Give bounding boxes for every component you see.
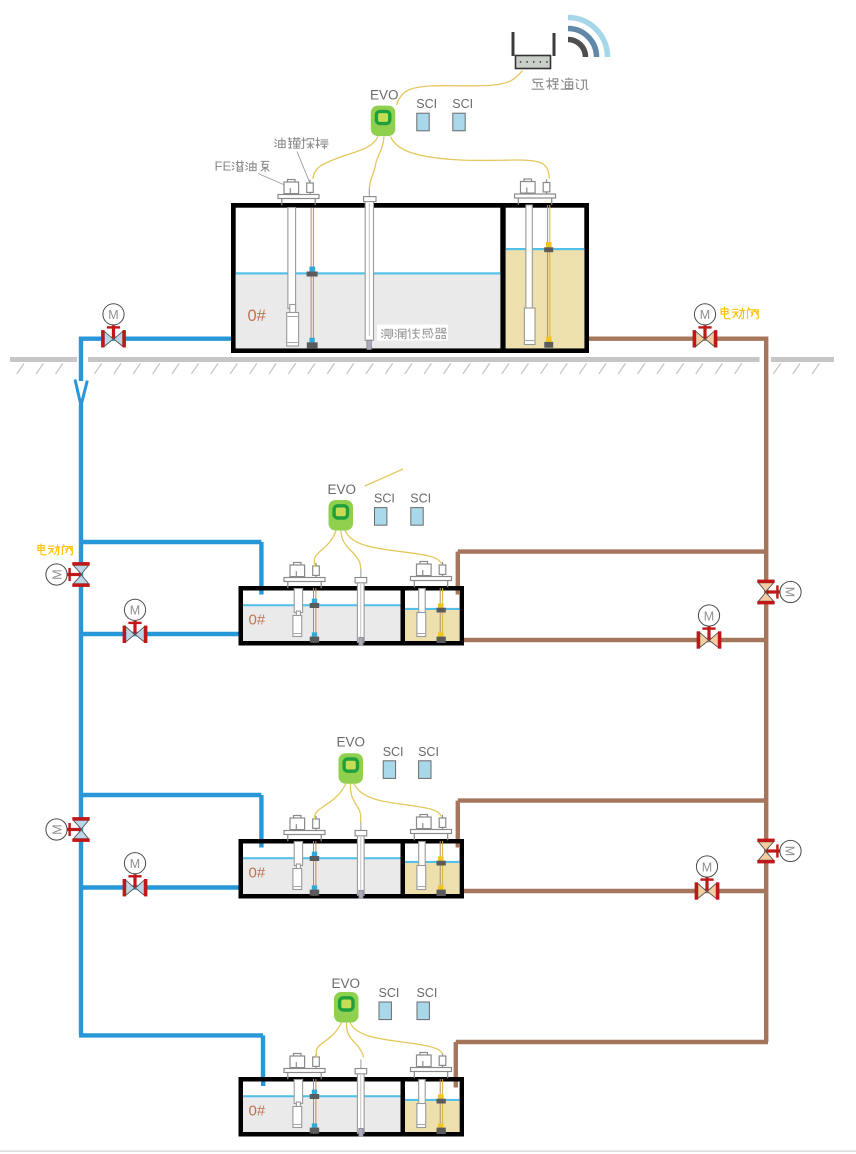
svg-text:EVO: EVO [337,735,366,750]
svg-text:EVO: EVO [328,482,357,497]
svg-text:FE: FE [215,159,232,174]
svg-text:EVO: EVO [370,88,399,103]
svg-text:SCI: SCI [417,986,438,1000]
svg-text:SCI: SCI [416,97,437,111]
svg-text:SCI: SCI [383,745,404,759]
svg-text:SCI: SCI [452,97,473,111]
svg-text:SCI: SCI [374,492,395,506]
svg-text:0#: 0# [248,307,267,325]
svg-text:EVO: EVO [332,976,361,991]
svg-text:SCI: SCI [418,745,439,759]
svg-text:SCI: SCI [410,492,431,506]
svg-text:SCI: SCI [379,986,400,1000]
